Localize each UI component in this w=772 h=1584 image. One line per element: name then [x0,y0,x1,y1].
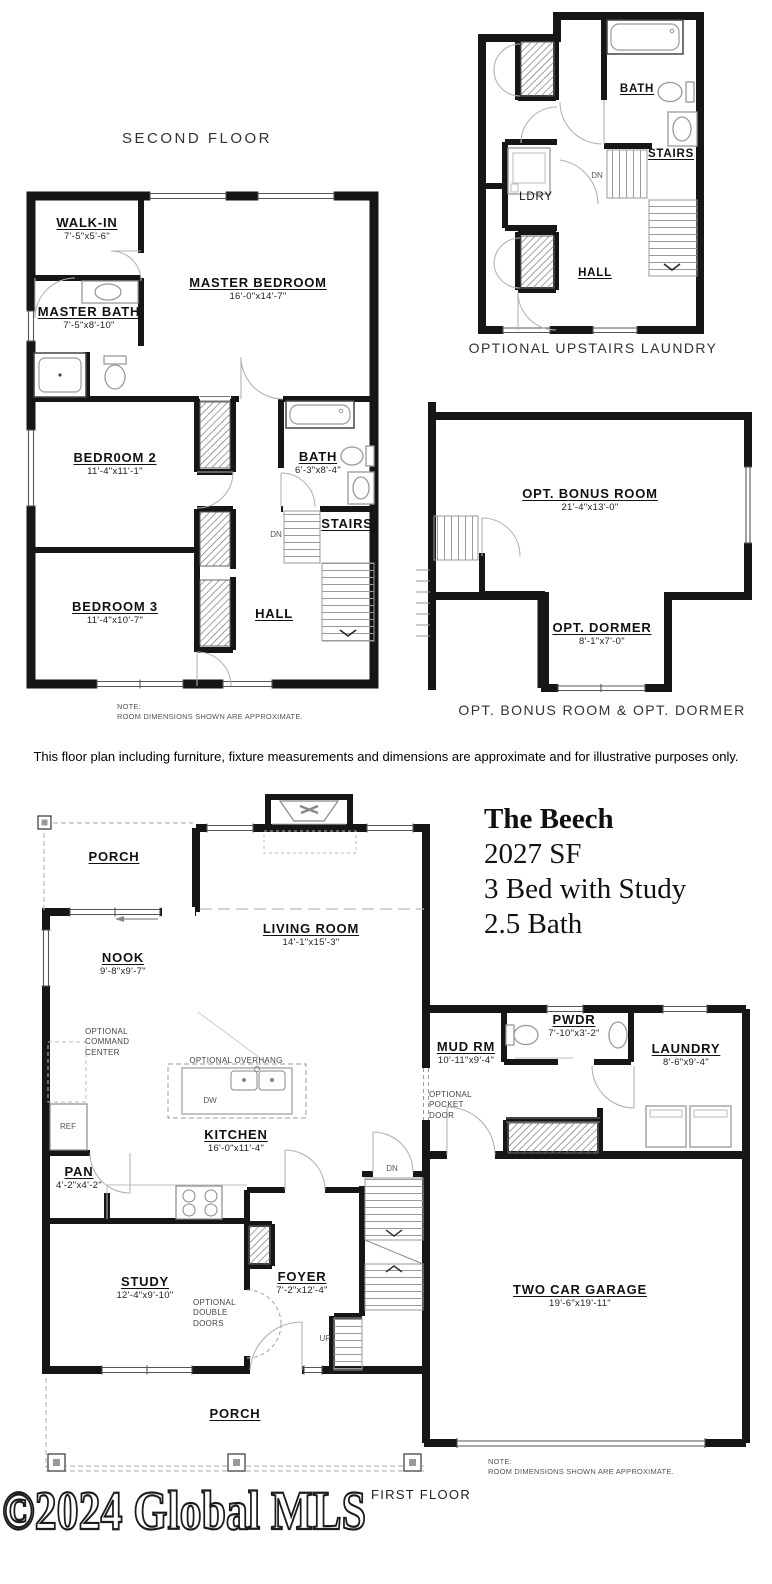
room-label-foyer: FOYER 7'-2"x12'-4" [276,1269,327,1296]
bonus-room-drawing [416,402,752,692]
room-label-porch-top: PORCH [89,849,140,864]
plan-sqft: 2027 SF [484,837,686,872]
first-floor-title: FIRST FLOOR [371,1487,471,1502]
ref-label: REF [60,1122,76,1131]
room-label-hall-laundry-plan: HALL [578,267,612,279]
annotation-command-center: OPTIONAL COMMAND CENTER [85,1027,129,1058]
room-label-powder: PWDR 7'-10"x3'-2" [548,1012,599,1039]
porch-posts [48,1454,421,1471]
room-label-master-bedroom: MASTER BEDROOM 16'-0"x14'-7" [189,275,327,302]
room-label-kitchen: KITCHEN 16'-0"x11'-4" [204,1127,267,1154]
kitchen-island [182,1068,292,1114]
bathtub [607,20,683,54]
stairs-dn-flight [365,1178,423,1240]
dn-label-2f: DN [270,530,282,539]
note-1f: NOTE: ROOM DIMENSIONS SHOWN ARE APPROXIM… [488,1457,674,1477]
room-label-master-bath: MASTER BATH 7'-5"x8'-10" [38,304,140,331]
room-label-pantry: PAN 4'-2"x4'-2" [56,1164,102,1191]
stairs-upper-flight [284,511,320,563]
plan-name: The Beech [484,802,686,837]
room-label-dormer: OPT. DORMER 8'-1"x7'-0" [552,620,651,647]
stairs-lower-flight [322,563,374,641]
optional-laundry-drawing [478,16,700,334]
disclaimer-text: This floor plan including furniture, fix… [0,749,772,764]
up-label-1f: UP [319,1334,330,1343]
dn-label-1f: DN [386,1164,398,1173]
stairs-up-flight [334,1318,362,1370]
room-label-nook: NOOK 9'-8"x9'-7" [100,950,146,977]
closet-hatch [200,402,230,646]
room-label-laundry-1f: LAUNDRY 8'-6"x9'-4" [652,1041,721,1068]
room-label-living-room: LIVING ROOM 14'-1"x15'-3" [263,921,359,948]
room-label-ldry: LDRY [519,191,553,203]
plan-beds: 3 Bed with Study [484,872,686,907]
note-2f: NOTE: ROOM DIMENSIONS SHOWN ARE APPROXIM… [117,702,303,722]
room-label-hall-2f: HALL [255,606,293,621]
room-label-study: STUDY 12'-4"x9'-10" [116,1274,173,1301]
annotation-pocket-door: OPTIONAL POCKET DOOR [429,1090,472,1121]
room-label-mud-room: MUD RM 10'-11"x9'-4" [437,1039,495,1066]
optional-laundry-caption: OPTIONAL UPSTAIRS LAUNDRY [469,340,718,356]
room-label-stairs-laundry-plan: STAIRS [648,148,694,160]
room-label-stairs-2f: STAIRS [321,516,373,531]
dw-label: DW [203,1096,216,1105]
room-label-bath-2f: BATH 6'-3"x8'-4" [295,449,341,476]
pocket-door-dashes [424,1068,429,1120]
annotation-overhang: OPTIONAL OVERHANG [189,1056,282,1066]
room-label-garage: TWO CAR GARAGE 19'-6"x19'-11" [513,1282,647,1309]
room-label-porch-bottom: PORCH [210,1406,261,1421]
room-label-walk-in: WALK-IN 7'-5"x5'-6" [56,215,117,242]
washer [508,148,550,194]
annotation-double-doors: OPTIONAL DOUBLE DOORS [193,1298,236,1329]
second-floor-title: SECOND FLOOR [122,130,272,147]
watermark-text: ©2024 Global MLS [2,1480,366,1541]
floor-plan-sheet: ©2024 Global MLS SECOND FLOOR WALK-IN 7'… [0,0,772,1584]
plan-baths: 2.5 Bath [484,907,686,942]
plan-title-block: The Beech 2027 SF 3 Bed with Study 2.5 B… [484,802,686,942]
bonus-room-caption: OPT. BONUS ROOM & OPT. DORMER [458,702,745,718]
room-label-bedroom-3: BEDROOM 3 11'-4"x10'-7" [72,599,158,626]
optional-double-doors-swing [247,1290,281,1358]
room-label-bedroom-2: BEDR0OM 2 11'-4"x11'-1" [73,450,156,477]
room-label-bonus-room: OPT. BONUS ROOM 21'-4"x13'-0" [522,486,658,513]
dn-label-laundry-plan: DN [591,171,603,180]
room-label-bath-laundry-plan: BATH [620,83,654,95]
command-center-counter [48,1042,86,1102]
